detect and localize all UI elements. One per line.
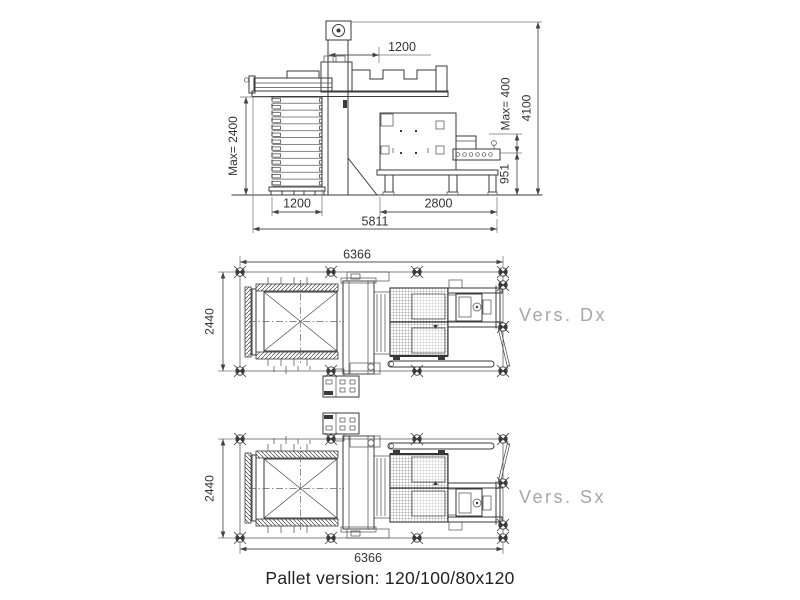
control-knob	[492, 141, 497, 146]
pallet-board	[269, 187, 325, 191]
dim-sx-length: 6366	[354, 551, 382, 565]
dim-total-length: 5811	[362, 215, 389, 229]
mast-column	[326, 21, 377, 195]
dim-dx-width: 2440	[203, 308, 217, 335]
dim-product-max-height: Max= 400	[499, 77, 513, 130]
plan-view-dx: 6366 2440 Vers. Dx	[203, 248, 608, 398]
dim-machine-length: 2800	[425, 197, 453, 211]
version-dx-label: Vers. Dx	[519, 305, 607, 325]
pallet-version-caption: Pallet version: 120/100/80x120	[265, 568, 514, 588]
tray-stack	[269, 97, 325, 195]
dim-arm-stroke: 1200	[388, 40, 416, 54]
side-elevation-view: 1200 Max= 2400 Max= 400 951 4100 1200 28…	[226, 21, 542, 233]
dim-dx-length: 6366	[343, 248, 371, 262]
product-box	[456, 136, 476, 149]
technical-drawing-canvas: 1200 Max= 2400 Max= 400 951 4100 1200 28…	[0, 0, 800, 600]
technical-drawing-page: 1200 Max= 2400 Max= 400 951 4100 1200 28…	[0, 0, 800, 600]
plan-view-sx: 2440 6366 Vers. Sx	[203, 413, 607, 565]
version-sx-label: Vers. Sx	[519, 487, 606, 507]
dim-conveyor-height: 951	[498, 164, 512, 184]
outfeed-conveyor	[453, 136, 500, 160]
dim-stack-max-height: Max= 2400	[226, 116, 240, 176]
lifting-arm	[244, 56, 448, 97]
dim-sx-width: 2440	[203, 475, 217, 502]
machine-body	[377, 113, 498, 195]
dim-total-height: 4100	[520, 94, 534, 121]
dim-pallet-width: 1200	[283, 197, 311, 211]
